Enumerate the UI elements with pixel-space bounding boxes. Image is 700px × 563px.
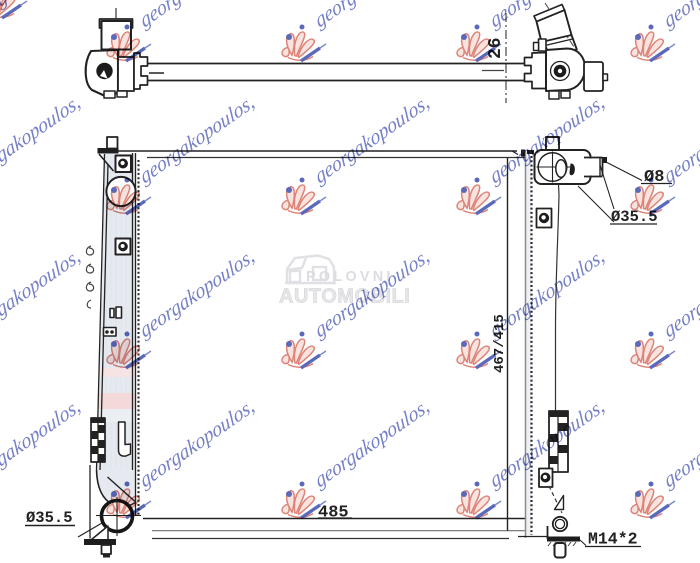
svg-text:485: 485 <box>318 504 349 523</box>
svg-text:M14*2: M14*2 <box>588 530 638 549</box>
svg-text:Ø35.5: Ø35.5 <box>611 208 658 226</box>
svg-text:Ø35.5: Ø35.5 <box>26 509 73 527</box>
